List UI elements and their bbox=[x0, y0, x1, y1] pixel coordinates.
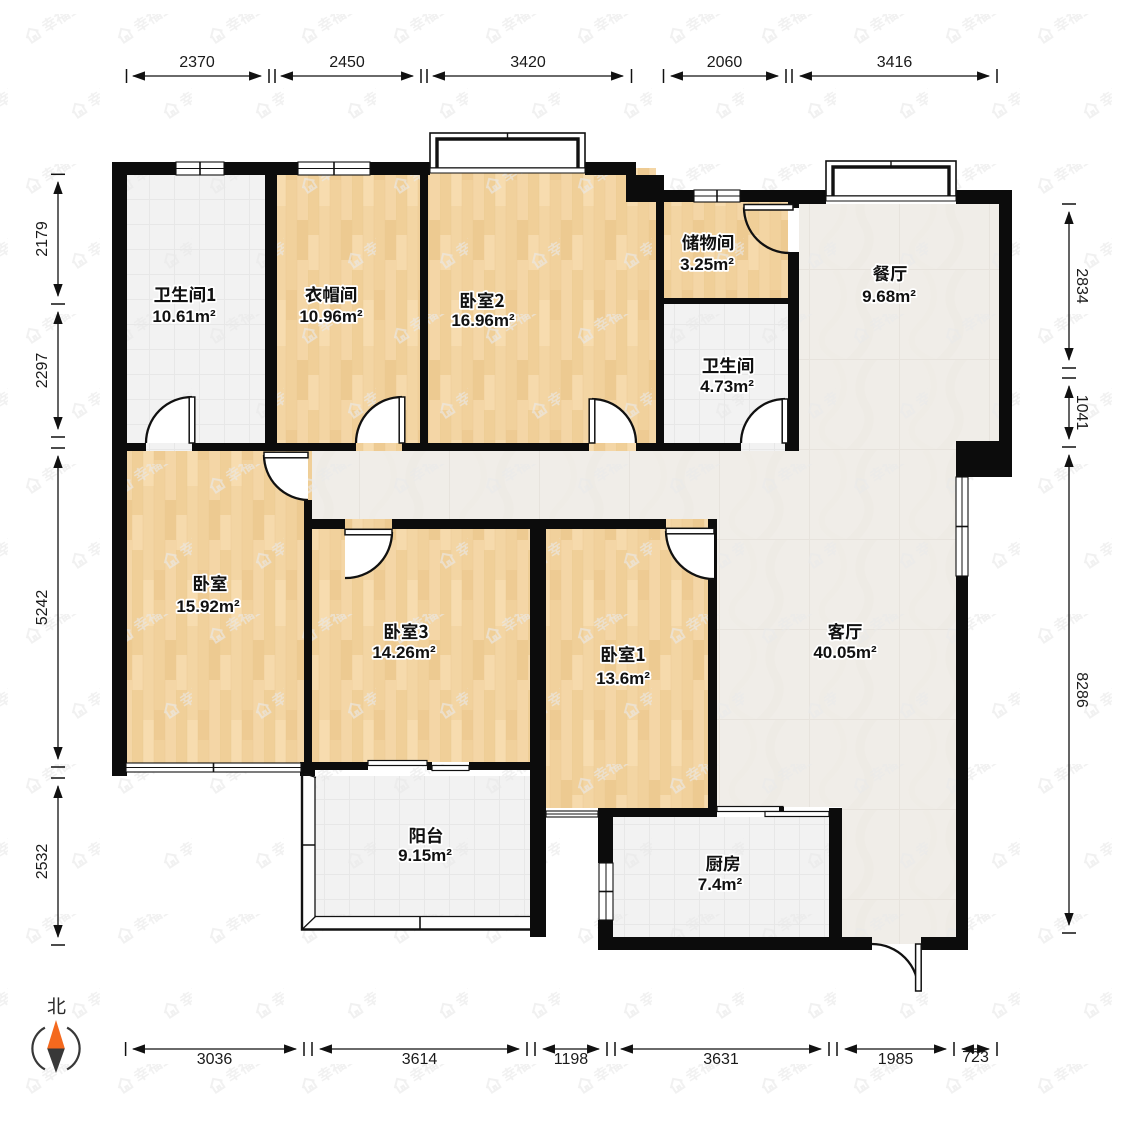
svg-text:1041: 1041 bbox=[1073, 395, 1090, 431]
svg-text:3036: 3036 bbox=[197, 1051, 233, 1068]
svg-text:1985: 1985 bbox=[878, 1051, 914, 1068]
svg-text:2834: 2834 bbox=[1073, 268, 1090, 304]
svg-text:13.6m²: 13.6m² bbox=[596, 669, 650, 688]
svg-text:3614: 3614 bbox=[402, 1051, 438, 1068]
svg-text:10.96m²: 10.96m² bbox=[299, 307, 363, 326]
svg-text:5242: 5242 bbox=[34, 590, 51, 626]
svg-text:723: 723 bbox=[962, 1049, 989, 1066]
svg-text:8286: 8286 bbox=[1073, 672, 1090, 708]
svg-text:3631: 3631 bbox=[703, 1051, 739, 1068]
svg-text:1198: 1198 bbox=[554, 1051, 589, 1068]
svg-text:2179: 2179 bbox=[34, 221, 51, 257]
svg-text:15.92m²: 15.92m² bbox=[176, 597, 240, 616]
svg-text:40.05m²: 40.05m² bbox=[813, 643, 877, 662]
svg-text:3420: 3420 bbox=[510, 54, 546, 71]
svg-text:3416: 3416 bbox=[877, 54, 913, 71]
svg-text:3.25m²: 3.25m² bbox=[680, 255, 734, 274]
svg-text:2532: 2532 bbox=[34, 844, 51, 880]
svg-text:9.15m²: 9.15m² bbox=[398, 846, 452, 865]
svg-text:14.26m²: 14.26m² bbox=[372, 643, 436, 662]
svg-text:4.73m²: 4.73m² bbox=[700, 377, 754, 396]
svg-text:2370: 2370 bbox=[179, 54, 215, 71]
svg-text:2450: 2450 bbox=[329, 54, 365, 71]
svg-text:2297: 2297 bbox=[34, 353, 51, 389]
svg-text:9.68m²: 9.68m² bbox=[862, 287, 916, 306]
svg-text:7.4m²: 7.4m² bbox=[698, 875, 743, 894]
svg-text:10.61m²: 10.61m² bbox=[152, 307, 216, 326]
svg-text:16.96m²: 16.96m² bbox=[451, 311, 515, 330]
svg-text:2060: 2060 bbox=[707, 54, 743, 71]
